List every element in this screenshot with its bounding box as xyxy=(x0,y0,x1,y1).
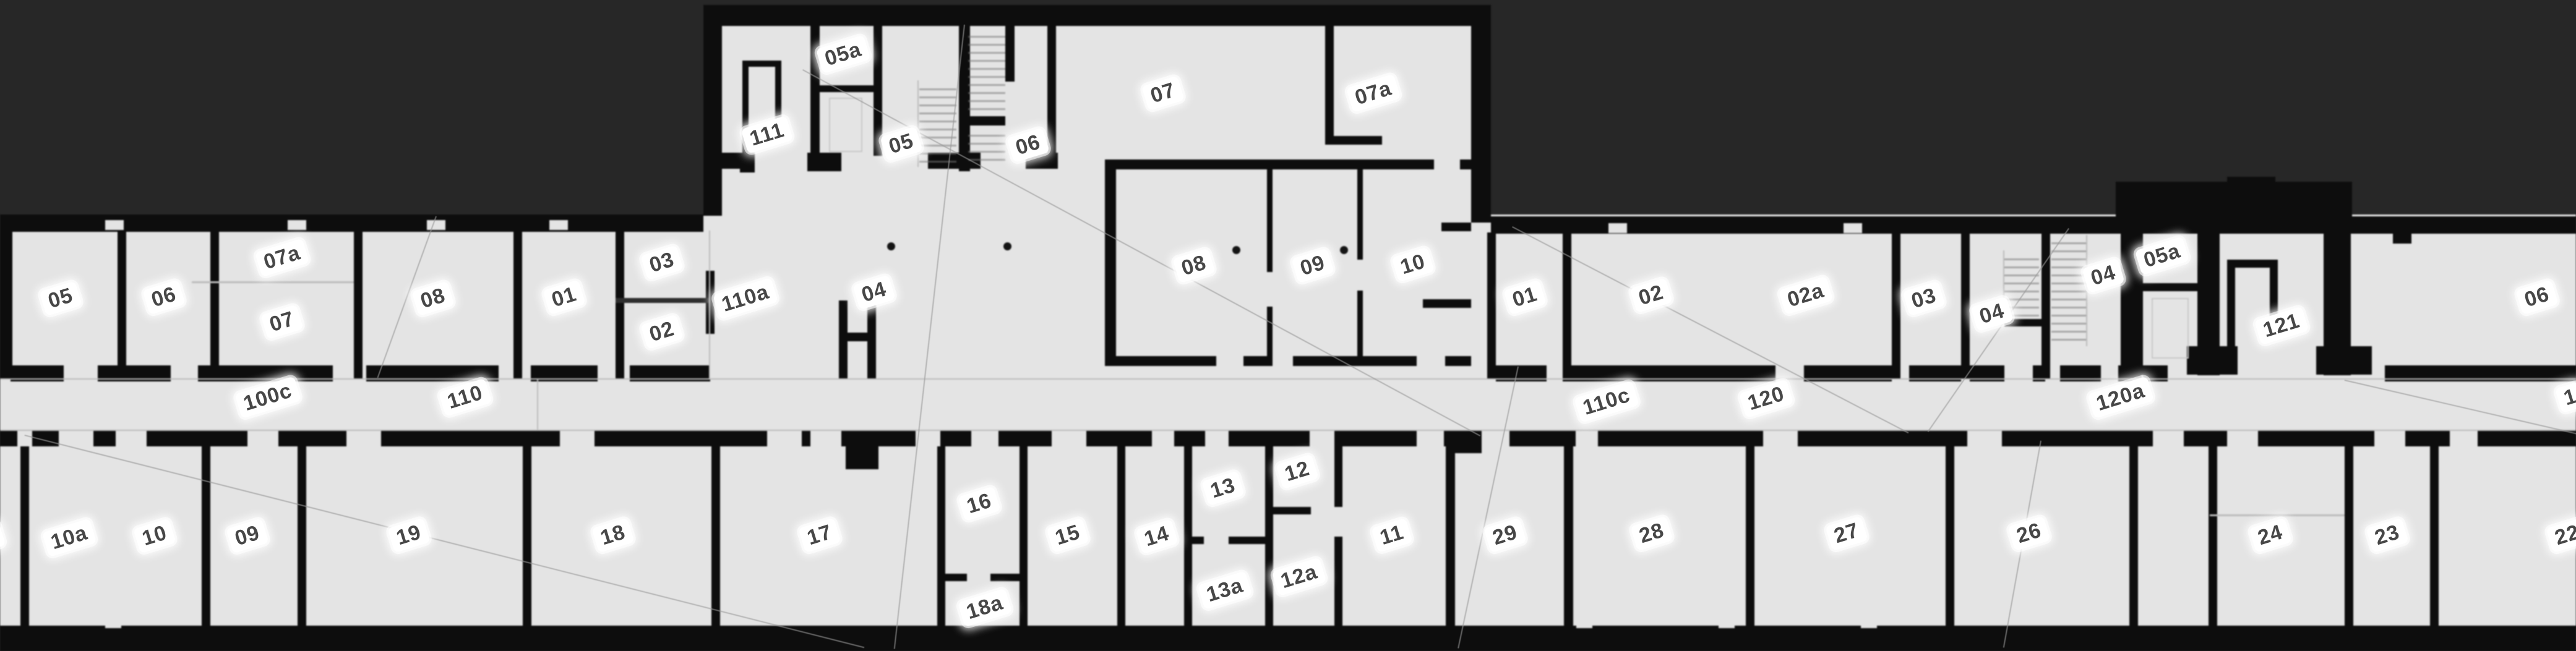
room-label-07a: 07a xyxy=(1346,74,1401,113)
room-label-120: 120 xyxy=(1739,380,1793,419)
room-label-06: 06 xyxy=(2515,279,2558,315)
room-label-18: 18 xyxy=(591,517,634,553)
room-label-08: 08 xyxy=(411,281,454,316)
floorplan-labels: 05a11105060707a050607a0708010302110a0408… xyxy=(0,0,2576,651)
room-label-110: 110 xyxy=(439,378,492,417)
room-label-17: 17 xyxy=(798,517,841,553)
room-label-07: 07 xyxy=(260,304,303,339)
room-label-121: 121 xyxy=(2254,307,2309,346)
room-label-1: 1 xyxy=(2555,381,2576,413)
room-label-27: 27 xyxy=(1825,516,1868,551)
room-label-03: 03 xyxy=(640,245,683,280)
room-label-03: 03 xyxy=(1902,281,1945,316)
room-label-120a: 120a xyxy=(2087,377,2153,419)
room-label-110c: 110c xyxy=(1574,381,1639,423)
room-label-06: 06 xyxy=(142,279,185,315)
room-label-09: 09 xyxy=(226,518,268,553)
room-label-13a: 13a xyxy=(1198,571,1252,610)
room-label-05: 05 xyxy=(39,281,82,316)
room-label-22: 22 xyxy=(2546,517,2576,553)
room-label-100c: 100c xyxy=(234,377,301,419)
room-label-10a: 10a xyxy=(42,519,97,558)
room-label-06: 06 xyxy=(1007,127,1049,163)
room-label-10: 10 xyxy=(133,518,176,553)
room-label-01: 01 xyxy=(543,279,585,315)
room-label-111: 111 xyxy=(741,116,794,154)
room-label-10: 10 xyxy=(1391,247,1434,282)
room-label-110a: 110a xyxy=(713,278,778,320)
room-label-16: 16 xyxy=(958,486,1000,521)
room-label-07a: 07a xyxy=(255,239,309,278)
room-label-18a: 18a xyxy=(958,589,1012,628)
room-label-02: 02 xyxy=(1629,278,1672,313)
room-label-04: 04 xyxy=(852,274,895,310)
room-label-09: 09 xyxy=(1291,248,1334,283)
room-label-02a: 02a xyxy=(1779,276,1833,315)
room-label-04: 04 xyxy=(2082,258,2124,293)
room-label-01: 01 xyxy=(1503,279,1546,315)
room-label-14: 14 xyxy=(1135,519,1178,554)
room-label-07: 07 xyxy=(1141,75,1184,111)
floorplan-canvas: 05a11105060707a050607a0708010302110a0408… xyxy=(0,0,2576,651)
room-label-24: 24 xyxy=(2249,517,2291,553)
room-label-29: 29 xyxy=(1483,517,1526,553)
room-label-12: 12 xyxy=(1276,454,1318,489)
room-label-05a: 05a xyxy=(2135,237,2189,276)
room-label-23: 23 xyxy=(2366,517,2408,553)
room-label-04: 04 xyxy=(1970,296,2013,331)
room-label-15: 15 xyxy=(1046,517,1089,553)
room-label-11: 11 xyxy=(1371,518,1413,553)
room-label-05: 05 xyxy=(880,126,922,161)
room-label-0: 0 xyxy=(0,521,6,552)
room-label-08: 08 xyxy=(1172,248,1215,283)
room-label-28: 28 xyxy=(1630,516,1673,551)
room-label-05a: 05a xyxy=(816,35,870,74)
room-label-13: 13 xyxy=(1201,470,1244,506)
room-label-26: 26 xyxy=(2007,516,2050,551)
room-label-19: 19 xyxy=(387,517,430,553)
room-label-12a: 12a xyxy=(1272,558,1326,597)
room-label-02: 02 xyxy=(640,314,683,349)
